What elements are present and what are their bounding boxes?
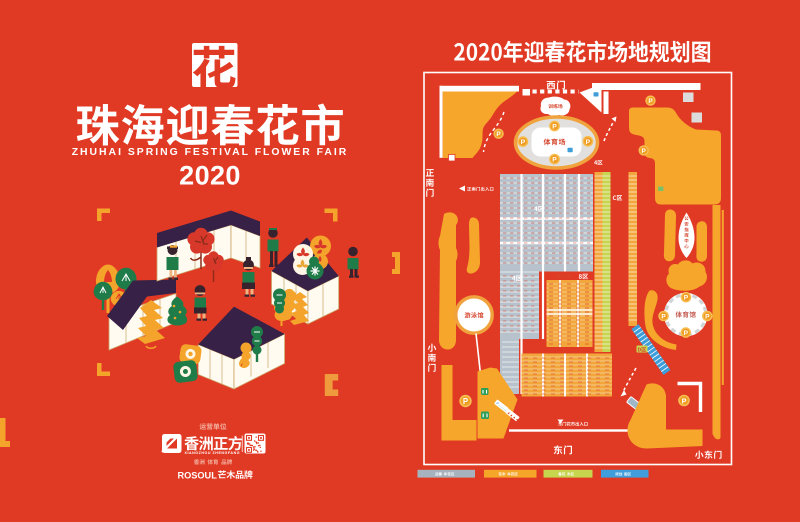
- svg-text:P: P: [586, 139, 591, 146]
- svg-text:P: P: [682, 396, 687, 405]
- svg-text:P: P: [684, 330, 689, 337]
- svg-text:P: P: [684, 295, 689, 302]
- svg-text:P: P: [642, 148, 647, 155]
- svg-text:P: P: [521, 139, 526, 146]
- svg-text:ROSOUL: ROSOUL: [178, 471, 218, 481]
- svg-text:P: P: [648, 98, 653, 105]
- svg-text:P: P: [705, 314, 710, 321]
- svg-text:P: P: [661, 314, 666, 321]
- svg-text:P: P: [496, 131, 501, 138]
- svg-text:2020: 2020: [179, 161, 241, 191]
- svg-text:P: P: [552, 124, 557, 131]
- svg-text:XIANGZHOU ZHENGFANG: XIANGZHOU ZHENGFANG: [185, 451, 241, 455]
- svg-text:ZHUHAI SPRING FESTIVAL FLOWER: ZHUHAI SPRING FESTIVAL FLOWER FAIR: [72, 147, 349, 158]
- svg-text:P: P: [463, 397, 468, 406]
- svg-text:P: P: [552, 157, 557, 164]
